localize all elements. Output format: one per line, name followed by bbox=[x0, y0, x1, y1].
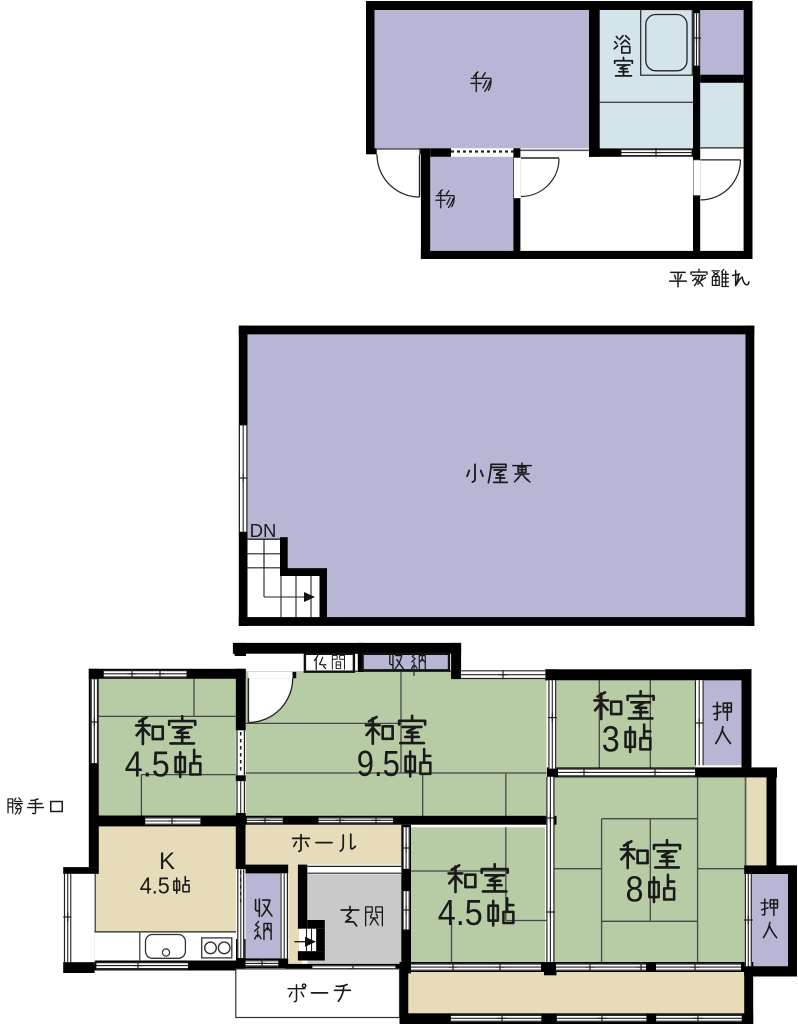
svg-text:3: 3 bbox=[602, 718, 620, 759]
svg-text:K: K bbox=[159, 848, 175, 875]
svg-text:8: 8 bbox=[626, 869, 644, 910]
svg-text:9.5: 9.5 bbox=[357, 743, 400, 784]
svg-text:DN: DN bbox=[250, 520, 277, 541]
svg-text:4.5: 4.5 bbox=[125, 744, 170, 785]
svg-text:4.5: 4.5 bbox=[140, 872, 170, 898]
svg-text:4.5: 4.5 bbox=[438, 892, 483, 933]
